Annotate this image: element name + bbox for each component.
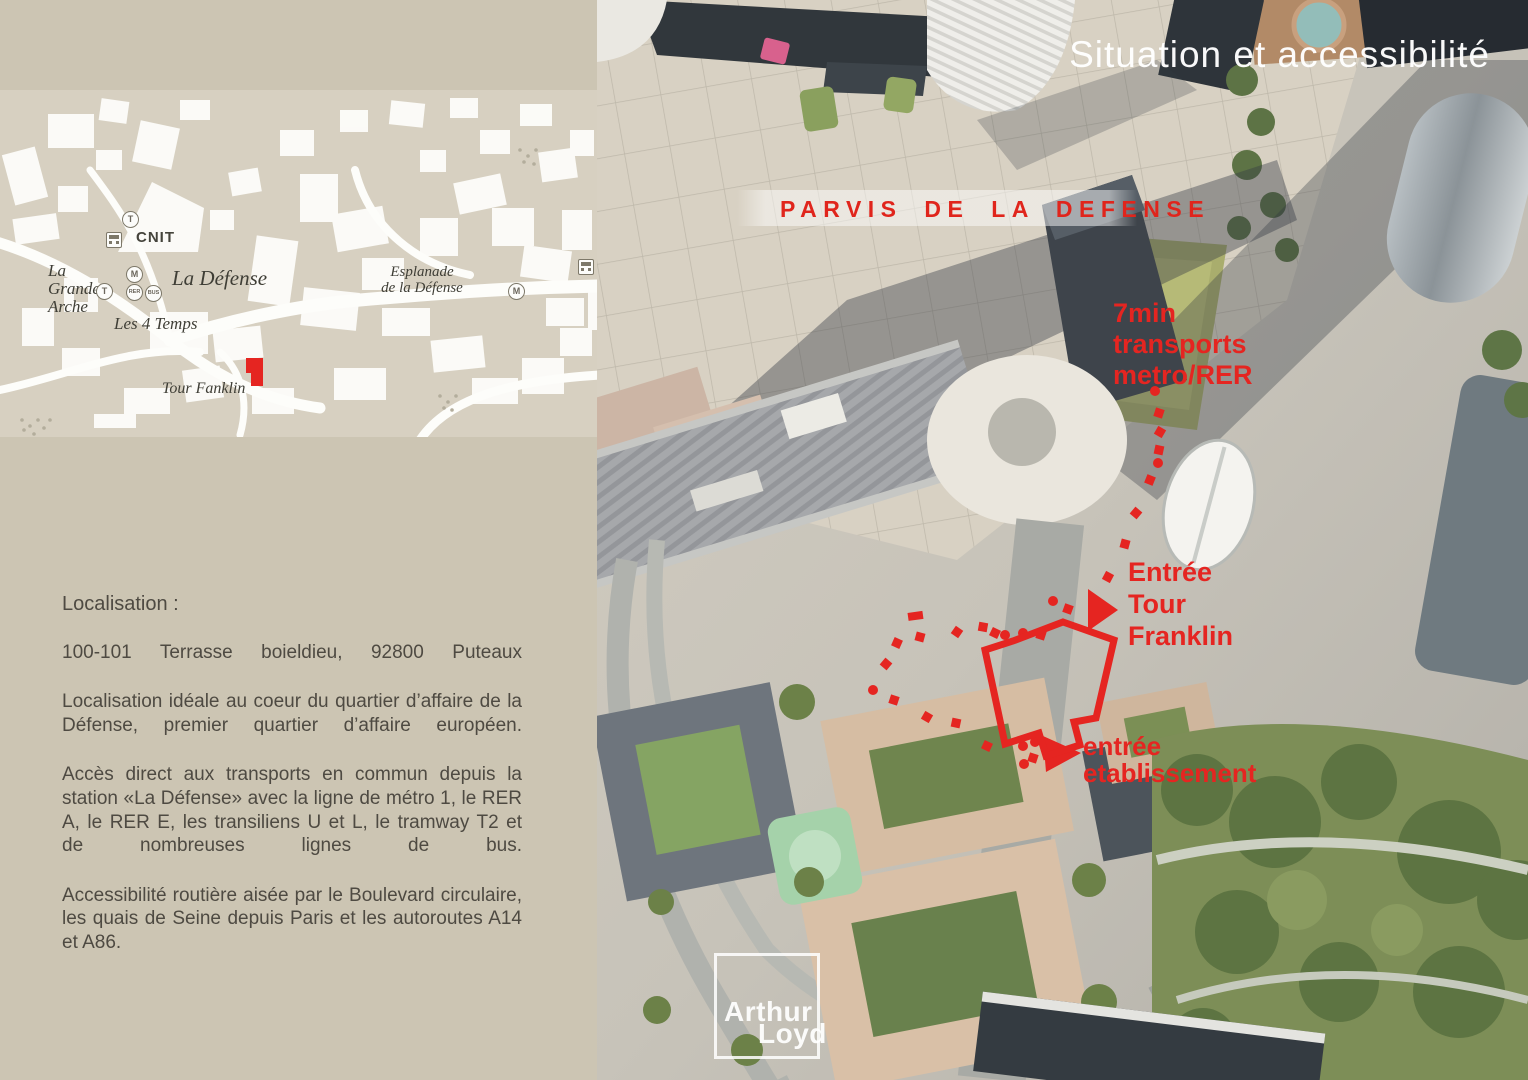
- transit-time-note: 7min transports metro/RER: [1113, 298, 1253, 391]
- paragraph-road-access: Accessibilité routière aisée par le Boul…: [62, 884, 522, 955]
- brochure-page: CNIT T La Grande Arche T M RER BUS La Dé…: [0, 0, 1528, 1080]
- map-label-esplanade: Esplanade de la Défense: [372, 264, 472, 296]
- page-title: Situation et accessibilité: [1069, 34, 1490, 76]
- station-icon: [578, 259, 594, 275]
- tram-icon: T: [122, 211, 139, 228]
- info-panel: CNIT T La Grande Arche T M RER BUS La Dé…: [0, 0, 597, 1080]
- aerial-photo: Situation et accessibilité PARVIS DE LA …: [597, 0, 1528, 1080]
- map-label-la-defense: La Défense: [172, 266, 267, 291]
- rer-icon: RER: [126, 284, 143, 301]
- map-label-grande-arche: La Grande Arche: [48, 262, 100, 316]
- arthur-loyd-logo: Arthur Loyd: [714, 953, 820, 1059]
- tram-icon: T: [96, 283, 113, 300]
- entrance-tower-note: Entrée Tour Franklin: [1128, 556, 1233, 652]
- paragraph-transports: Accès direct aux transports en commun de…: [62, 763, 522, 857]
- station-icon: [106, 232, 122, 248]
- district-map: CNIT T La Grande Arche T M RER BUS La Dé…: [0, 90, 597, 437]
- bus-icon: BUS: [145, 285, 162, 302]
- route-annotations: [597, 0, 1528, 1080]
- localisation-heading: Localisation :: [62, 592, 522, 617]
- map-label-cnit: CNIT: [136, 229, 175, 246]
- entrance-arrow-tower: [1088, 589, 1118, 631]
- map-label-les-4-temps: Les 4 Temps: [114, 314, 197, 334]
- metro-icon: M: [508, 283, 525, 300]
- address-line: 100-101 Terrasse boieldieu, 92800 Puteau…: [62, 641, 522, 665]
- metro-icon: M: [126, 266, 143, 283]
- description-text: Localisation : 100-101 Terrasse boieldie…: [62, 592, 522, 980]
- parvis-label: PARVIS DE LA DEFENSE: [780, 196, 1210, 223]
- paragraph-location: Localisation idéale au coeur du quartier…: [62, 690, 522, 737]
- map-label-tour-franklin: Tour Fanklin: [162, 380, 245, 398]
- entrance-establishment-note: entrée etablissement: [1083, 733, 1256, 787]
